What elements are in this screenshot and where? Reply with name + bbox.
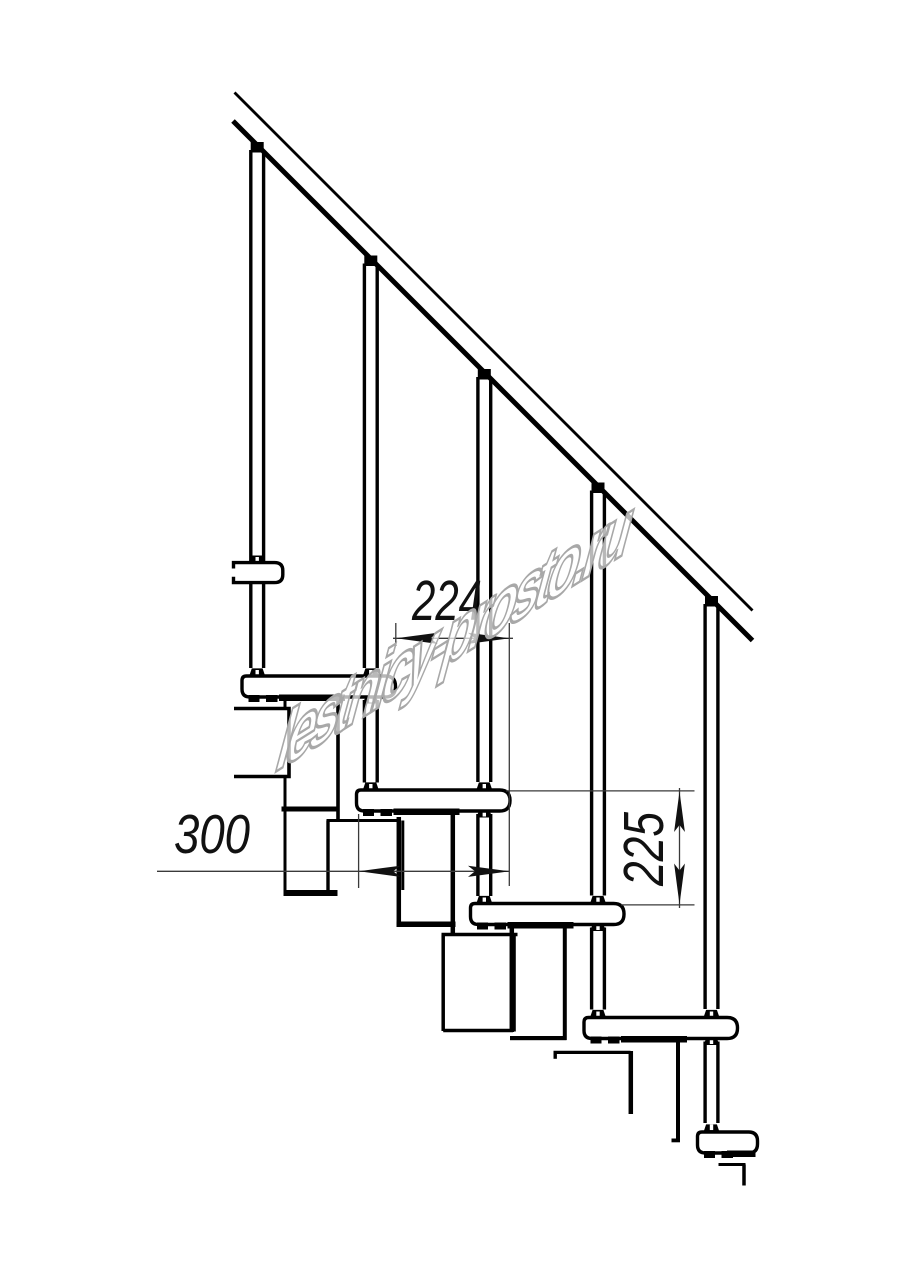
svg-text:225: 225 [612, 812, 676, 887]
svg-text:300: 300 [174, 803, 250, 865]
